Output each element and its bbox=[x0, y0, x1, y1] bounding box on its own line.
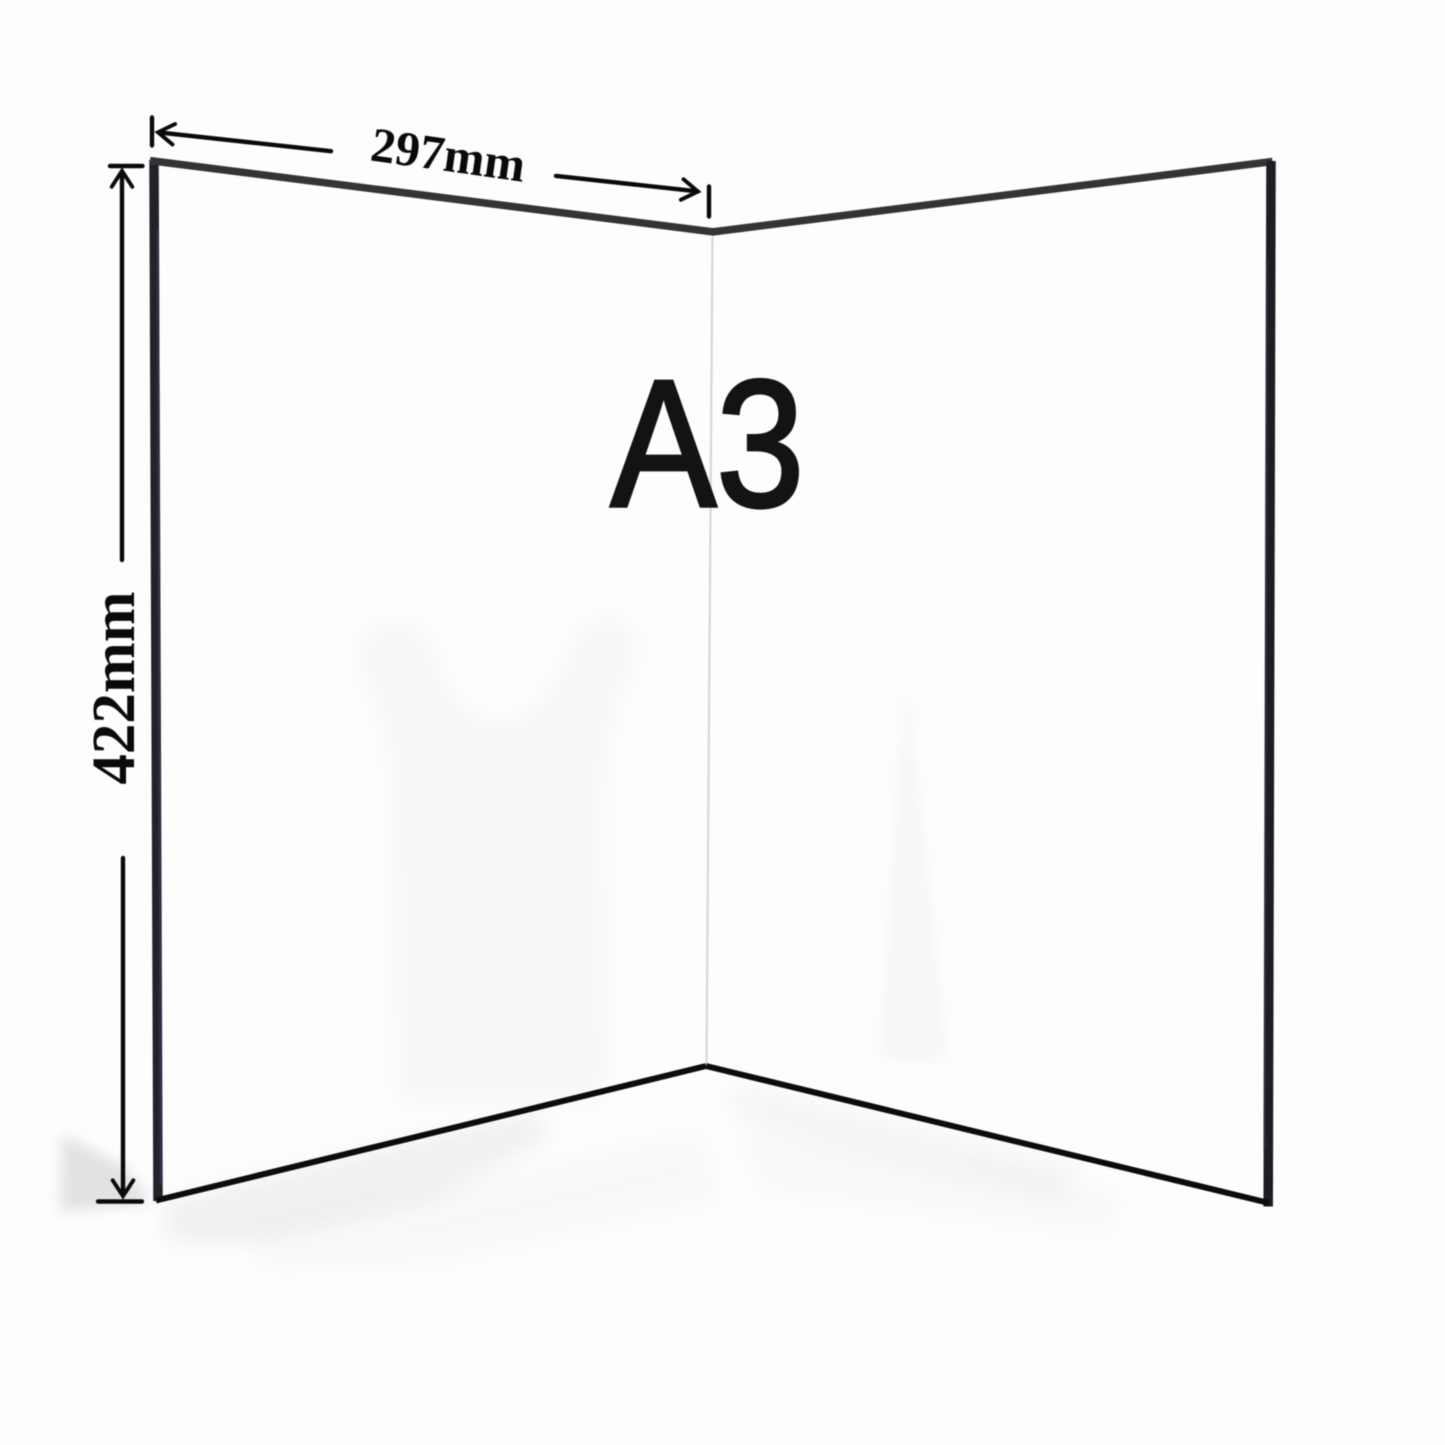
svg-text:422mm: 422mm bbox=[81, 591, 148, 784]
svg-text:A3: A3 bbox=[611, 343, 805, 545]
